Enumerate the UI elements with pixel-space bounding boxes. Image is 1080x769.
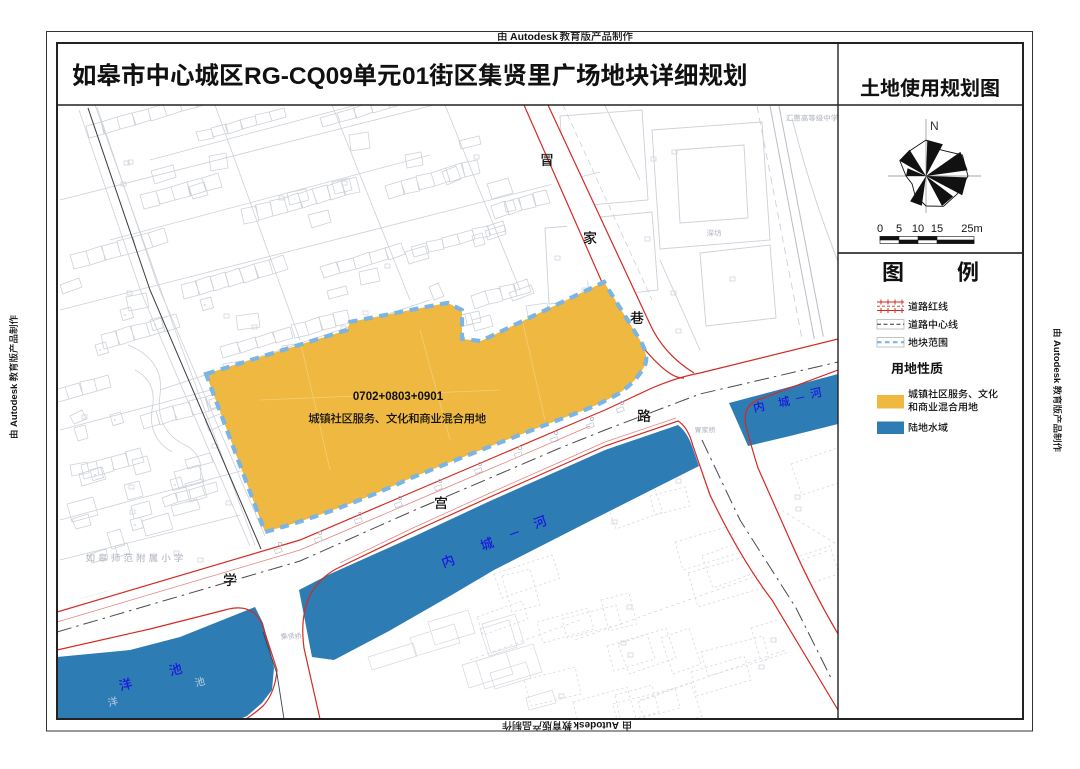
svg-text:5: 5	[896, 223, 902, 235]
svg-text:0: 0	[877, 223, 883, 235]
svg-text:01: 01	[402, 63, 429, 90]
svg-text:Autodesk: Autodesk	[510, 31, 558, 43]
svg-text:15: 15	[931, 223, 943, 235]
svg-text:25m: 25m	[961, 223, 982, 235]
svg-text:0702+0803+0901: 0702+0803+0901	[353, 391, 444, 403]
svg-text:RG-CQ09: RG-CQ09	[244, 63, 353, 90]
svg-text:Autodesk: Autodesk	[1051, 340, 1062, 384]
svg-text:10: 10	[912, 223, 924, 235]
svg-text:N: N	[930, 119, 939, 133]
svg-text:Autodesk: Autodesk	[9, 383, 20, 427]
svg-text:Autodesk: Autodesk	[573, 719, 619, 730]
